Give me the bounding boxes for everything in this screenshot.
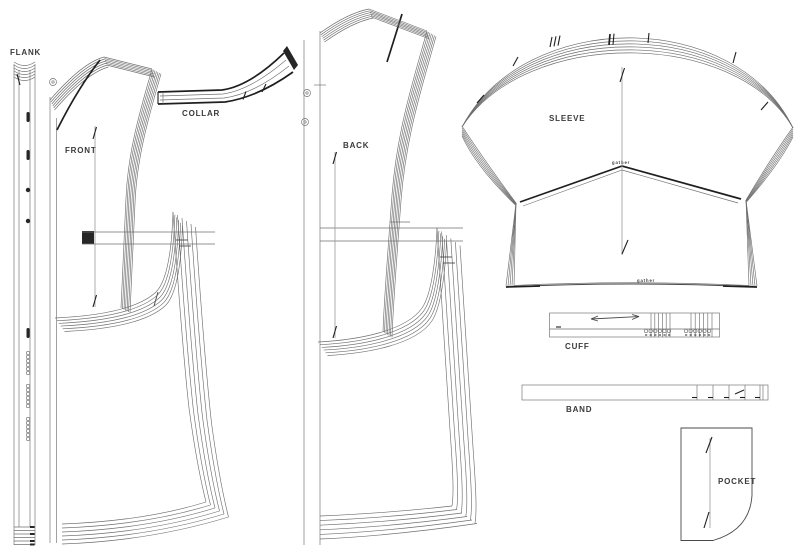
pocket-label: POCKET xyxy=(718,477,756,486)
cuff-label: CUFF xyxy=(565,342,590,351)
front-sideseam-gradelines xyxy=(173,212,229,517)
sleeve-piece: SLEEVE xyxy=(462,33,793,287)
back-neckline-gradelines xyxy=(320,9,374,42)
collar-label: COLLAR xyxy=(182,109,220,118)
pocket-grainline xyxy=(704,437,712,528)
band-grade-lines xyxy=(692,385,760,400)
sleeve-right-underarm-gradelines xyxy=(746,127,793,203)
front-underarm-gradelines xyxy=(55,212,183,332)
cuff-grade-cluster-right xyxy=(684,313,712,337)
pattern-drawing: FLANK xyxy=(0,0,800,554)
cuff-arrow xyxy=(591,315,639,322)
front-neckline-gradelines xyxy=(50,57,109,110)
front-roll-line xyxy=(57,60,100,130)
sleeve-side-gradelines xyxy=(506,200,757,286)
flank-button-marks xyxy=(26,351,29,440)
front-armhole-gradelines xyxy=(121,69,161,313)
sleeve-elbow-gather-line: gather xyxy=(520,160,741,206)
sleeve-cap-gradelines xyxy=(462,38,793,128)
collar-end-cap xyxy=(283,46,298,70)
back-grainline xyxy=(333,152,337,338)
cuff-grade-cluster-left xyxy=(644,313,670,337)
front-pocket-placement xyxy=(82,231,215,244)
front-hem-gradelines xyxy=(62,502,229,544)
band-piece: BAND xyxy=(522,385,768,414)
flank-label: FLANK xyxy=(10,48,41,57)
back-sideseam-gradelines xyxy=(437,228,476,524)
back-label: BACK xyxy=(343,141,369,150)
front-label: FRONT xyxy=(65,146,97,155)
cuff-piece: CUFF xyxy=(550,313,720,351)
sleeve-gather-top-label: gather xyxy=(612,160,630,165)
back-hem-gradelines xyxy=(320,506,477,539)
flank-bottom-gradelines xyxy=(14,526,35,546)
band-label: BAND xyxy=(566,405,592,414)
back-underarm-gradelines xyxy=(318,228,447,356)
sleeve-gather-bottom-label: gather xyxy=(637,278,655,283)
sleeve-left-underarm-gradelines xyxy=(462,126,516,206)
flank-piece: FLANK xyxy=(10,48,41,546)
collar-piece: COLLAR xyxy=(158,46,298,118)
front-shoulder-gradelines xyxy=(104,57,155,77)
back-piece: BACK xyxy=(302,9,478,545)
pattern-sheet: FLANK xyxy=(0,0,800,554)
pocket-piece: POCKET xyxy=(681,428,756,541)
flank-buttonholes xyxy=(26,112,30,338)
back-armhole-gradelines xyxy=(383,31,436,337)
sleeve-hem: gather xyxy=(506,278,757,287)
front-piece: FRONT xyxy=(50,57,229,544)
flank-top-gradelines xyxy=(14,62,35,85)
sleeve-label: SLEEVE xyxy=(549,114,585,123)
